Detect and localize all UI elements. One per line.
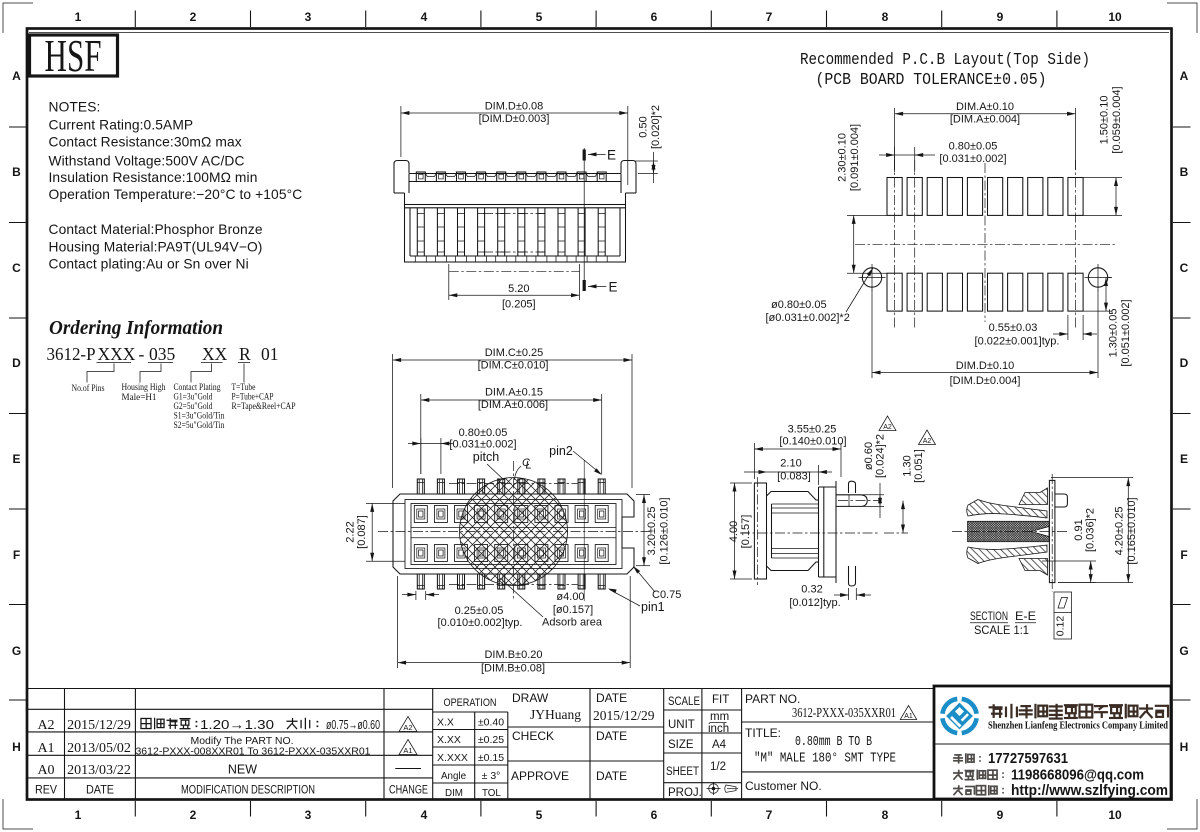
svg-text:FIT: FIT — [712, 694, 729, 706]
svg-text:[DIM.D±0.004]: [DIM.D±0.004] — [950, 375, 1021, 387]
svg-text:[0.205]: [0.205] — [502, 299, 536, 311]
svg-text:2015/12/29: 2015/12/29 — [67, 718, 131, 733]
svg-text:A1: A1 — [904, 713, 913, 720]
svg-text:[0.087]: [0.087] — [356, 515, 368, 549]
svg-text:ø0.75→ø0.60: ø0.75→ø0.60 — [326, 717, 380, 732]
svg-text:R: R — [239, 344, 251, 364]
svg-text:OPERATION: OPERATION — [444, 697, 497, 709]
svg-text:3: 3 — [305, 10, 312, 24]
svg-text:XX: XX — [202, 344, 228, 364]
svg-text:A2: A2 — [923, 438, 932, 445]
svg-text:[DIM.D±0.003]: [DIM.D±0.003] — [479, 113, 550, 125]
svg-text:A2: A2 — [403, 723, 412, 732]
svg-text:[0.031±0.002]: [0.031±0.002] — [449, 439, 516, 451]
svg-text:L: L — [526, 460, 532, 472]
svg-text:[ø0.031±0.002]*2: [ø0.031±0.002]*2 — [766, 312, 850, 324]
svg-text:01: 01 — [261, 344, 279, 364]
svg-text:E: E — [609, 280, 618, 295]
svg-text:G2=5u″Gold: G2=5u″Gold — [174, 402, 213, 412]
svg-text:inch: inch — [708, 723, 729, 735]
svg-text:3612-PXXX-008XXR01 To 3612-PXX: 3612-PXXX-008XXR01 To 3612-PXXX-035XXR01 — [135, 746, 370, 758]
svg-text:MODIFICATION DESCRIPTION: MODIFICATION DESCRIPTION — [181, 785, 315, 797]
svg-text:[DIM.A±0.004]: [DIM.A±0.004] — [950, 114, 1020, 126]
svg-text:0.80mm B TO B: 0.80mm B TO B — [795, 735, 872, 750]
svg-text:F: F — [1180, 548, 1187, 562]
svg-text:0.55±0.03: 0.55±0.03 — [989, 322, 1038, 334]
svg-text:DIM.A±0.15: DIM.A±0.15 — [485, 387, 543, 399]
svg-text:E: E — [1180, 452, 1188, 466]
svg-text:4: 4 — [421, 10, 428, 24]
svg-text:1.30: 1.30 — [902, 455, 914, 476]
svg-text:[0.091±0.004]: [0.091±0.004] — [849, 124, 861, 191]
svg-text:P=Tube+CAP: P=Tube+CAP — [232, 393, 274, 403]
svg-text:3.20±0.25: 3.20±0.25 — [646, 507, 658, 556]
svg-text:9: 9 — [997, 10, 1004, 24]
svg-text:035: 035 — [149, 344, 176, 364]
svg-text:NOTES:: NOTES: — [49, 100, 101, 115]
svg-text:2013/03/22: 2013/03/22 — [67, 763, 131, 778]
svg-text:9: 9 — [997, 808, 1004, 822]
svg-text:5.20: 5.20 — [508, 283, 529, 295]
svg-text:1/2: 1/2 — [710, 761, 726, 773]
svg-text:Insulation Resistance:100MΩ: Insulation Resistance:100MΩ min — [49, 170, 258, 185]
svg-text:NEW: NEW — [228, 763, 257, 777]
svg-text:DIM.D±0.10: DIM.D±0.10 — [956, 360, 1015, 372]
svg-text:Contact Material:Phosphor Br: Contact Material:Phosphor Bronze — [49, 222, 263, 237]
svg-text:G: G — [1179, 644, 1188, 658]
svg-text:4.00: 4.00 — [728, 521, 740, 542]
svg-text:S2=5u″Gold/Tin: S2=5u″Gold/Tin — [174, 421, 225, 431]
svg-text:C: C — [12, 261, 21, 275]
svg-text:0.50: 0.50 — [638, 116, 650, 137]
svg-text:[0.010±0.002]typ.: [0.010±0.002]typ. — [438, 617, 523, 629]
svg-text:A: A — [1180, 69, 1189, 83]
svg-text:[0.126±0.010]: [0.126±0.010] — [659, 497, 671, 564]
svg-text:ø0.60: ø0.60 — [863, 442, 875, 470]
svg-text:0.91: 0.91 — [1073, 519, 1085, 540]
svg-text:E-E: E-E — [1015, 609, 1036, 623]
svg-text:2.30±0.10: 2.30±0.10 — [837, 133, 849, 182]
svg-text:2: 2 — [190, 808, 197, 822]
svg-text:Recommended P.C.B Layout(Top S: Recommended P.C.B Layout(Top Side) — [800, 51, 1090, 70]
svg-text:D: D — [12, 356, 21, 370]
svg-text:2: 2 — [190, 10, 197, 24]
svg-text:APPROVE: APPROVE — [511, 769, 569, 783]
svg-text:DATE: DATE — [596, 729, 627, 743]
svg-text:[0.012]typ.: [0.012]typ. — [789, 597, 840, 609]
svg-text:F: F — [13, 548, 20, 562]
svg-text:REV: REV — [35, 785, 57, 797]
svg-text:±0.40: ±0.40 — [478, 717, 504, 729]
svg-text:pitch: pitch — [473, 450, 499, 464]
svg-text:2015/12/29: 2015/12/29 — [593, 708, 655, 723]
svg-text:SCALE: SCALE — [668, 696, 700, 708]
svg-text:2.10: 2.10 — [780, 458, 801, 470]
svg-text:[0.157]: [0.157] — [740, 515, 752, 549]
svg-text:Male=H1: Male=H1 — [122, 393, 157, 403]
svg-text:SECTION: SECTION — [970, 609, 1008, 623]
svg-text:± 3°: ± 3° — [482, 770, 501, 782]
svg-text:2.22: 2.22 — [345, 521, 357, 542]
svg-text:SIZE: SIZE — [668, 739, 694, 751]
svg-text:CHANGE: CHANGE — [389, 785, 428, 797]
svg-text:4: 4 — [421, 808, 428, 822]
svg-text:[DIM.A±0.006]: [DIM.A±0.006] — [478, 399, 548, 411]
svg-text:pin2: pin2 — [549, 444, 573, 458]
svg-text:ø4.00: ø4.00 — [556, 591, 584, 603]
svg-text:[0.036]*2: [0.036]*2 — [1085, 508, 1097, 552]
svg-text:PROJ.: PROJ. — [668, 787, 702, 799]
svg-text:1.50±0.10: 1.50±0.10 — [1099, 96, 1111, 145]
svg-text:Contact plating:Au or Sn o: Contact plating:Au or Sn over Ni — [49, 257, 249, 272]
svg-text:No.of Pins: No.of Pins — [72, 383, 105, 394]
svg-text:[0.140±0.010]: [0.140±0.010] — [779, 436, 846, 448]
svg-text:-: - — [139, 344, 145, 364]
svg-text:1.30±0.05: 1.30±0.05 — [1108, 309, 1120, 358]
svg-text:Current Rating:0.5AMP: Current Rating:0.5AMP — [49, 118, 194, 133]
svg-text:DIM.A±0.10: DIM.A±0.10 — [956, 101, 1014, 113]
svg-text:[0.022±0.001]typ.: [0.022±0.001]typ. — [975, 336, 1060, 348]
svg-text:A1: A1 — [403, 746, 412, 755]
svg-text:C: C — [1180, 261, 1189, 275]
svg-text:8: 8 — [882, 808, 889, 822]
svg-text:pin1: pin1 — [641, 600, 665, 614]
svg-text:7: 7 — [766, 10, 773, 24]
svg-text:1198668096@qq.com: 1198668096@qq.com — [1011, 768, 1144, 784]
svg-text:1.20→1.30: 1.20→1.30 — [200, 717, 274, 732]
svg-text:0.80±0.05: 0.80±0.05 — [949, 141, 998, 153]
svg-text:Contact Resistance:30mΩ max: Contact Resistance:30mΩ max — [49, 135, 242, 150]
svg-text:Housing High: Housing High — [122, 383, 166, 393]
svg-text:8: 8 — [882, 10, 889, 24]
svg-text:http://www.szlfying.com: http://www.szlfying.com — [1011, 783, 1168, 799]
svg-text:10: 10 — [1108, 808, 1122, 822]
svg-text:3: 3 — [305, 808, 312, 822]
svg-text:B: B — [12, 165, 21, 179]
svg-text:[0.059±0.004]: [0.059±0.004] — [1111, 86, 1123, 153]
svg-text:DIM.B±0.20: DIM.B±0.20 — [484, 649, 542, 661]
svg-text:mm: mm — [710, 711, 729, 723]
svg-text:DIM: DIM — [445, 788, 463, 799]
svg-text:Shenzhen Lianfeng Electronics: Shenzhen Lianfeng Electronics Company Li… — [988, 721, 1168, 732]
svg-text:(PCB BOARD TOLERANCE±0.05): (PCB BOARD TOLERANCE±0.05) — [816, 71, 1047, 90]
svg-text:6: 6 — [651, 808, 658, 822]
svg-text:[DIM.C±0.010]: [DIM.C±0.010] — [478, 360, 549, 372]
svg-text:6: 6 — [651, 10, 658, 24]
svg-text:Angle: Angle — [441, 771, 467, 782]
svg-text:B: B — [1180, 165, 1189, 179]
svg-text:3612-P: 3612-P — [47, 344, 96, 364]
svg-text:DIM.D±0.08: DIM.D±0.08 — [485, 101, 544, 113]
svg-text:A2: A2 — [883, 424, 892, 431]
svg-text:4.20±0.25: 4.20±0.25 — [1114, 507, 1126, 556]
svg-text:[0.083]: [0.083] — [777, 471, 811, 483]
svg-text:1: 1 — [75, 10, 82, 24]
svg-text:A2: A2 — [37, 718, 54, 733]
svg-text:5: 5 — [536, 10, 543, 24]
svg-text:0.25±0.05: 0.25±0.05 — [455, 605, 504, 617]
svg-text:3.55±0.25: 3.55±0.25 — [788, 424, 837, 436]
svg-text:TITLE:: TITLE: — [745, 726, 781, 740]
svg-text:R=Tape&Reel+CAP: R=Tape&Reel+CAP — [232, 402, 296, 412]
svg-text:[ø0.157]: [ø0.157] — [553, 604, 593, 616]
svg-text:[0.031±0.002]: [0.031±0.002] — [939, 153, 1006, 165]
svg-text:Withstand Voltage:500V AC/DC: Withstand Voltage:500V AC/DC — [49, 154, 245, 169]
svg-text:H: H — [1180, 740, 1189, 754]
svg-text:DATE: DATE — [596, 769, 627, 783]
svg-text:A0: A0 — [37, 763, 54, 778]
svg-text:1: 1 — [75, 808, 82, 822]
svg-text:E: E — [607, 148, 616, 163]
svg-text:[0.165±0.010]: [0.165±0.010] — [1126, 497, 1138, 564]
svg-text:X.XXX: X.XXX — [437, 752, 468, 764]
svg-text:XXX: XXX — [98, 344, 136, 364]
svg-text:DIM.C±0.25: DIM.C±0.25 — [485, 347, 544, 359]
svg-text:UNIT: UNIT — [668, 719, 695, 731]
svg-text:SCALE 1:1: SCALE 1:1 — [974, 623, 1029, 637]
svg-text:10: 10 — [1108, 10, 1122, 24]
svg-text:T=Tube: T=Tube — [232, 383, 256, 393]
svg-text:X.X: X.X — [437, 717, 454, 729]
svg-text:G: G — [12, 644, 21, 658]
svg-text:17727597631: 17727597631 — [988, 751, 1068, 767]
svg-text:DRAW: DRAW — [512, 691, 549, 705]
svg-text:X.XX: X.XX — [437, 734, 461, 746]
svg-text:Housing Material:PA9T(UL94V−O: Housing Material:PA9T(UL94V−O) — [49, 240, 263, 255]
svg-text:[0.024]*2: [0.024]*2 — [875, 434, 887, 478]
svg-text:±0.15: ±0.15 — [478, 752, 504, 764]
svg-text:JYHuang: JYHuang — [530, 707, 581, 722]
svg-text:[DIM.B±0.08]: [DIM.B±0.08] — [481, 663, 545, 675]
svg-text:CHECK: CHECK — [512, 729, 554, 743]
svg-text:TOL: TOL — [482, 788, 501, 799]
svg-text:DATE: DATE — [86, 785, 114, 797]
svg-text:7: 7 — [766, 808, 773, 822]
svg-text:Adsorb area: Adsorb area — [542, 617, 603, 629]
svg-text:[0.051]: [0.051] — [913, 449, 925, 483]
svg-text:0.80±0.05: 0.80±0.05 — [459, 427, 508, 439]
svg-text:[0.020]*2: [0.020]*2 — [650, 105, 662, 149]
svg-text:″M″ MALE 180° SMT TYPE: ″M″ MALE 180° SMT TYPE — [754, 752, 896, 767]
svg-text:S1=3u″Gold/Tin: S1=3u″Gold/Tin — [174, 412, 225, 422]
svg-text:3612-PXXX-035XXR01: 3612-PXXX-035XXR01 — [792, 706, 896, 721]
svg-text:Ordering Information: Ordering Information — [49, 317, 223, 339]
svg-text:Contact Plating: Contact Plating — [174, 383, 221, 393]
svg-text:±0.25: ±0.25 — [478, 734, 504, 746]
svg-text:G1=3u″Gold: G1=3u″Gold — [174, 393, 213, 403]
svg-text:Operation Temperature:−20°C: Operation Temperature:−20°C to +105°C — [49, 187, 303, 202]
svg-text:A1: A1 — [37, 741, 54, 756]
svg-text:A: A — [12, 69, 21, 83]
svg-text:SHEET: SHEET — [666, 766, 699, 778]
svg-text:E: E — [12, 452, 20, 466]
svg-text:A4: A4 — [712, 739, 727, 751]
svg-text:ø0.80±0.05: ø0.80±0.05 — [771, 299, 827, 311]
svg-text:5: 5 — [536, 808, 543, 822]
svg-text:H: H — [12, 740, 21, 754]
svg-text:DATE: DATE — [596, 691, 627, 705]
svg-text:0.32: 0.32 — [801, 584, 822, 596]
svg-text:0.12: 0.12 — [1054, 616, 1066, 637]
svg-text:HSF: HSF — [45, 30, 102, 81]
svg-text:Customer NO.: Customer NO. — [745, 779, 822, 793]
svg-text:D: D — [1180, 356, 1189, 370]
svg-text:[0.051±0.002]: [0.051±0.002] — [1120, 299, 1132, 366]
svg-text:2013/05/02: 2013/05/02 — [67, 741, 131, 756]
svg-text:PART NO.: PART NO. — [745, 692, 800, 706]
